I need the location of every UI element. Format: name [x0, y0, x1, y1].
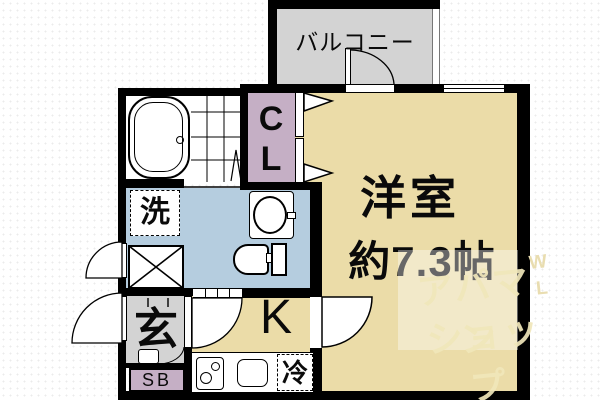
kitchen-label-text: K — [260, 294, 292, 342]
tile-fold-mark — [231, 150, 241, 181]
watermark-letter-w-text: W — [528, 251, 550, 274]
kitchen-door-arc — [192, 298, 242, 348]
main-room-door-arc — [322, 297, 372, 347]
closet-letter-l: L — [250, 140, 292, 178]
closet-letter-c: C — [250, 100, 292, 138]
closet-arrow-top — [304, 93, 332, 111]
tile-grid — [184, 96, 240, 187]
watermark-letter-l: L — [531, 277, 555, 301]
balcony-label: バルコニー — [285, 26, 425, 58]
front-door-arc-large — [72, 293, 122, 343]
watermark-letter-l-text: L — [535, 277, 551, 299]
closet-letter-c-text: C — [259, 102, 284, 136]
shaft-cross — [129, 246, 183, 288]
balcony-label-text: バルコニー — [295, 31, 415, 54]
entrance-label-text: 玄 — [134, 308, 178, 352]
western-room-label-text: 洋室 — [360, 175, 460, 221]
kitchen-label: K — [250, 292, 302, 344]
closet-letter-l-text: L — [261, 142, 282, 176]
watermark-letter-w: W — [527, 251, 551, 275]
western-room-label: 洋室 — [320, 172, 500, 224]
entrance-label: 玄 — [131, 305, 181, 355]
front-door-arc-small — [86, 242, 122, 278]
floor-plan: 洗 冷 SB — [0, 0, 600, 400]
